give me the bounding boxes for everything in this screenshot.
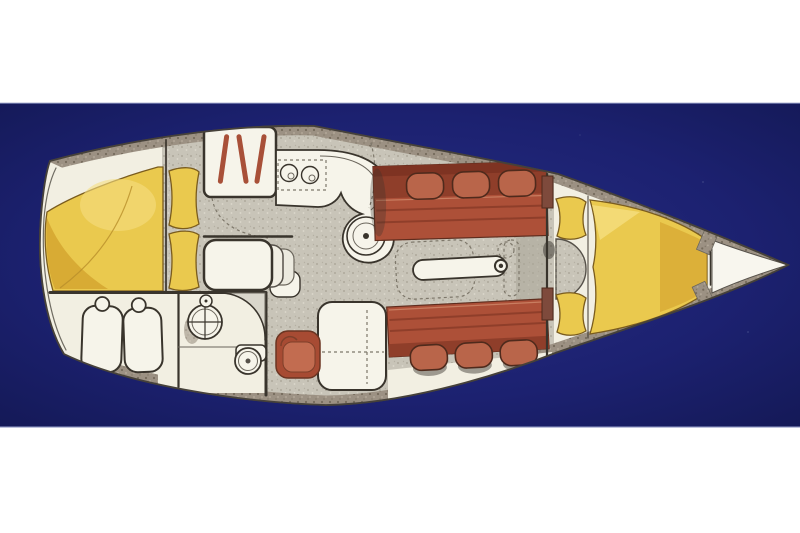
saloon-settee-upper [369,161,548,240]
saloon-table [413,256,508,281]
settee-cushion-2 [455,342,493,369]
seat-cushion-2 [123,307,163,372]
chart-table [318,302,386,390]
step-1 [204,240,272,290]
v-berth-pillow-lower [556,293,586,335]
v-berth-pillow-upper [556,197,586,239]
round-sink-drain [363,233,369,239]
photo-top-edge-line [0,103,800,104]
galley-sink-left [281,165,298,182]
faucet-dot [205,300,208,303]
boat-floorplan-illustration [0,0,800,533]
settee-cushion-3 [498,170,536,197]
table-top [413,256,507,281]
seat-cushion-1 [81,305,123,372]
cushion-2-headrest [132,298,146,312]
settee-cushion-1 [410,344,448,371]
wardrobe-lower [542,288,553,320]
wardrobe-upper [542,176,553,208]
cushion-1-headrest [95,297,109,311]
toilet-drain [246,359,251,364]
settee-cushion-2 [452,171,490,198]
settee-cushion-1 [406,172,444,199]
scanned-photo-page [0,0,800,533]
galley-stove [204,127,276,197]
nav-seat-cushion [283,342,315,372]
photo-bottom-edge-line [0,426,800,427]
galley-sink-right [302,167,319,184]
bulkhead-shadow [543,241,555,259]
berth-highlight [80,179,156,231]
